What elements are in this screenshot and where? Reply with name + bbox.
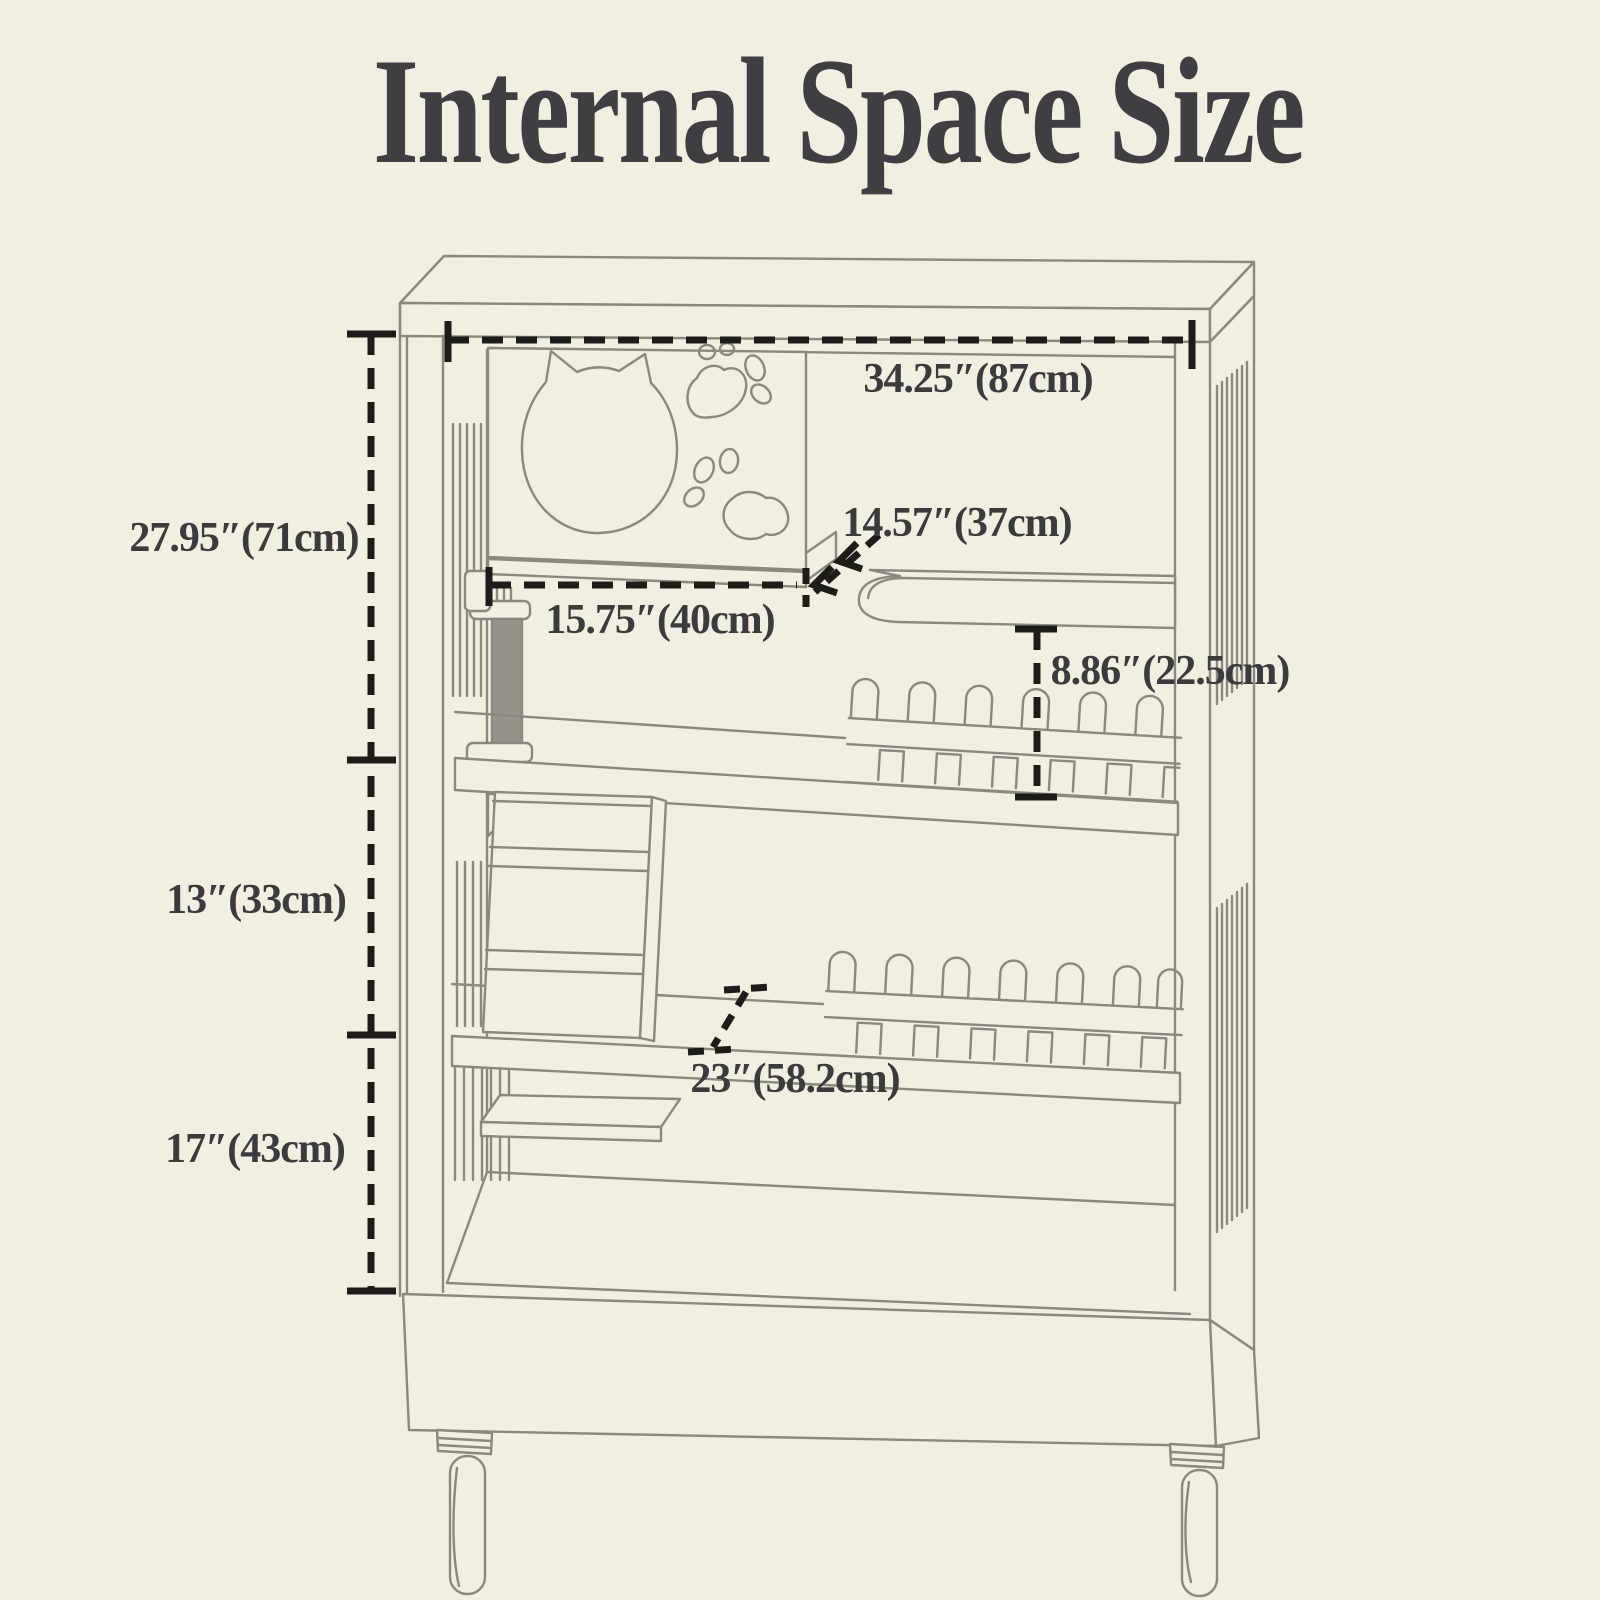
- infographic-canvas: Internal Space Size: [0, 0, 1600, 1600]
- left-front-post: [400, 303, 443, 1296]
- top-slab-front: [400, 303, 1210, 342]
- page-title-wrap: Internal Space Size: [373, 28, 1303, 195]
- ramp-stairs: [483, 792, 666, 1041]
- label-shelf-width: 15.75″(40cm): [545, 597, 774, 643]
- label-shelf-diagonal: 14.57″(37cm): [842, 500, 1071, 546]
- label-middle-section-height: 13″(33cm): [166, 877, 346, 923]
- page-title: Internal Space Size: [373, 28, 1303, 195]
- fence-lower: [823, 951, 1185, 1073]
- left-vent-slats-top: [453, 424, 481, 696]
- cat-panel: [488, 343, 836, 587]
- left-wall-floor-junction: [447, 1172, 487, 1283]
- caster-wheel-left: [437, 1430, 492, 1594]
- fence-upper: [845, 678, 1184, 802]
- right-vent-slats-bottom: [1217, 884, 1247, 1232]
- scratching-post: [467, 588, 532, 762]
- caster-wheel-right: [1170, 1444, 1224, 1596]
- label-fence-height: 8.86″(22.5cm): [1051, 648, 1290, 694]
- floor-back-edge: [487, 1172, 1175, 1205]
- label-base-depth: 23″(58.2cm): [690, 1056, 899, 1102]
- curved-shelf: [859, 570, 1175, 628]
- label-bottom-section-height: 17″(43cm): [165, 1126, 345, 1172]
- bottom-shelf: [481, 1095, 680, 1141]
- base-plinth-front: [403, 1294, 1216, 1446]
- left-vent-slats-middle: [457, 862, 481, 1026]
- internal-space-size-diagram: Internal Space Size: [0, 0, 1600, 1600]
- dim-left-heights: [347, 334, 396, 1291]
- cat-cabinet-drawing: [400, 256, 1259, 1596]
- top-slab-top: [400, 256, 1254, 309]
- label-top-width: 34.25″(87cm): [863, 356, 1092, 402]
- label-upper-section-height: 27.95″(71cm): [129, 515, 358, 561]
